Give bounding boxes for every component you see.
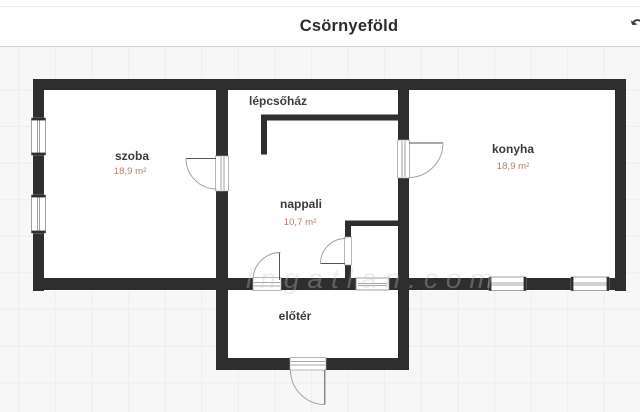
- svg-text:lépcsőház: lépcsőház: [249, 94, 307, 108]
- svg-text:18,9 m²: 18,9 m²: [114, 166, 147, 177]
- svg-text:nappali: nappali: [280, 197, 322, 211]
- svg-text:szoba: szoba: [115, 149, 149, 163]
- svg-text:konyha: konyha: [492, 142, 534, 156]
- svg-text:előtér: előtér: [279, 309, 312, 323]
- svg-text:ingatlan.com: ingatlan.com: [246, 263, 501, 294]
- svg-text:18,9 m²: 18,9 m²: [497, 161, 530, 172]
- svg-text:10,7 m²: 10,7 m²: [284, 217, 317, 228]
